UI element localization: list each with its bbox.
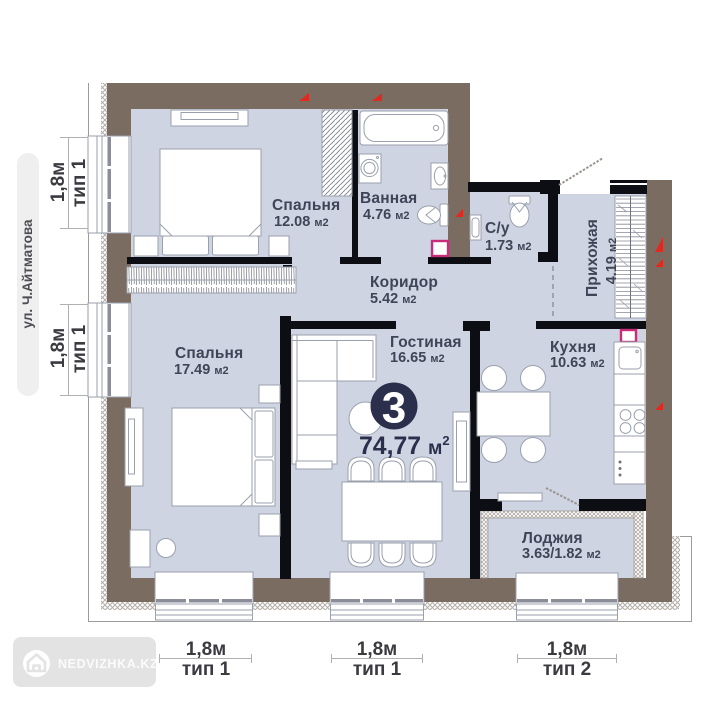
svg-text:1,8м: 1,8м [547,639,587,660]
svg-text:С/у: С/у [485,220,510,237]
svg-text:Спальня: Спальня [175,345,243,362]
svg-text:3.63/1.82 м2: 3.63/1.82 м2 [522,546,601,562]
svg-text:Спальня: Спальня [272,197,340,214]
svg-text:16.65 м2: 16.65 м2 [390,350,445,366]
svg-text:Ванная: Ванная [360,190,417,207]
svg-text:Гостиная: Гостиная [390,334,462,351]
svg-text:10.63 м2: 10.63 м2 [550,355,605,371]
svg-text:1,8м: 1,8м [48,328,69,368]
svg-text:5.42 м2: 5.42 м2 [370,291,417,307]
svg-text:12.08 м2: 12.08 м2 [274,214,329,230]
svg-text:1.73 м2: 1.73 м2 [485,238,532,254]
svg-text:тип 1: тип 1 [182,659,231,680]
svg-text:3: 3 [382,384,406,433]
svg-text:Коридор: Коридор [370,274,438,291]
svg-text:17.49 м2: 17.49 м2 [174,362,229,378]
svg-text:тип 1: тип 1 [353,659,402,680]
svg-text:4.19 м2: 4.19 м2 [604,238,620,285]
svg-text:Лоджия: Лоджия [522,530,583,547]
svg-text:74,77 м2: 74,77 м2 [359,433,450,460]
svg-text:Прихожая: Прихожая [584,219,601,297]
svg-text:ул. Ч.Айтматова: ул. Ч.Айтматова [20,219,35,328]
svg-text:1,8м: 1,8м [48,162,69,202]
svg-text:Кухня: Кухня [550,339,596,356]
svg-text:1,8м: 1,8м [357,639,397,660]
svg-text:тип 1: тип 1 [69,324,90,373]
svg-text:4.76 м2: 4.76 м2 [363,207,410,223]
svg-text:NEDVIZHKA.KZ: NEDVIZHKA.KZ [58,657,158,671]
svg-text:тип 2: тип 2 [543,659,591,680]
svg-text:тип 1: тип 1 [69,158,90,207]
svg-text:1,8м: 1,8м [186,639,226,660]
